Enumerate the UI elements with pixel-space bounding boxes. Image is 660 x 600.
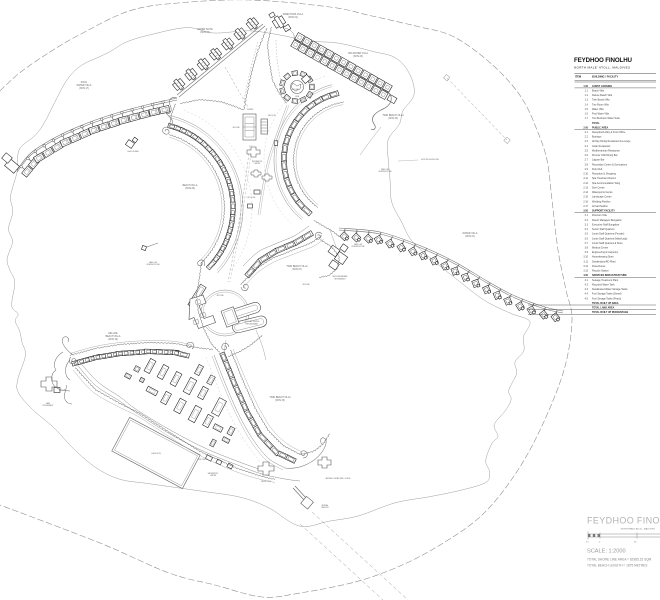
svg-text:Desalinated Water Storage Tank: Desalinated Water Storage Tanks — [592, 288, 628, 291]
svg-text:Fuel Storage Tanks (Petrol): Fuel Storage Tanks (Petrol) — [592, 297, 621, 300]
svg-text:Arrival Pavilion: Arrival Pavilion — [592, 205, 608, 208]
svg-text:NORTH MALE' ATOLL, MALDIVES: NORTH MALE' ATOLL, MALDIVES — [621, 528, 656, 531]
svg-text:Wedding Pavilion: Wedding Pavilion — [592, 200, 611, 203]
svg-text:CENTRE: CENTRE — [254, 163, 261, 165]
svg-text:BEACH VILLA: BEACH VILLA — [183, 184, 198, 187]
svg-text:SERVICES INFRASTRUCTURE: SERVICES INFRASTRUCTURE — [592, 274, 627, 277]
svg-text:All Day Dining Restaurant & Lo: All Day Dining Restaurant & Lounge — [592, 140, 631, 143]
svg-text:Watersports Centre: Watersports Centre — [592, 191, 613, 194]
svg-text:3.11: 3.11 — [584, 260, 589, 263]
svg-text:TOTAL: TOTAL — [592, 122, 600, 125]
svg-text:TOTAL BUILT UP PERCENTAGE: TOTAL BUILT UP PERCENTAGE — [592, 311, 629, 314]
svg-text:Junior Staff Quarters (Male/La: Junior Staff Quarters (Male/Lady) — [592, 237, 628, 240]
svg-text:Landscape Centre: Landscape Centre — [592, 196, 612, 199]
svg-text:Lagoon Bar: Lagoon Bar — [592, 159, 605, 162]
svg-text:(NOS 26): (NOS 26) — [353, 56, 363, 58]
svg-text:SCALE: 1:2000: SCALE: 1:2000 — [587, 549, 626, 555]
svg-text:4M ZONE: 4M ZONE — [291, 89, 298, 91]
svg-text:Boutique: Boutique — [592, 136, 602, 139]
svg-text:Directors Villa: Directors Villa — [592, 214, 607, 217]
svg-text:BUILDING / FACILITY: BUILDING / FACILITY — [592, 75, 618, 79]
svg-text:TOTAL SHORE LINE AREA = 82985.: TOTAL SHORE LINE AREA = 82985.15 SQM — [587, 558, 652, 562]
svg-text:Pool Water Villa: Pool Water Villa — [592, 113, 610, 116]
svg-text:DIVE CENTRE: DIVE CENTRE — [198, 459, 208, 461]
svg-text:GUEST LODGING: GUEST LODGING — [592, 85, 612, 88]
svg-text:TWIN BEACH VILLA: TWIN BEACH VILLA — [269, 396, 291, 399]
svg-text:(NOS 17): (NOS 17) — [79, 88, 89, 90]
svg-text:(NOS 07): (NOS 07) — [292, 269, 302, 271]
svg-text:Executive Staff Bungalow: Executive Staff Bungalow — [592, 223, 619, 226]
svg-text:2.16: 2.16 — [583, 200, 588, 203]
svg-text:2.15: 2.15 — [583, 196, 588, 199]
svg-text:Two Bedroom Water Suite: Two Bedroom Water Suite — [592, 117, 620, 120]
svg-text:PUBLIC AREA: PUBLIC AREA — [592, 126, 609, 129]
svg-text:TWIN BEACH VILLA: TWIN BEACH VILLA — [382, 114, 404, 117]
svg-text:Spa Accommodation Wing: Spa Accommodation Wing — [592, 182, 621, 185]
svg-text:TOTAL LAND AREA: TOTAL LAND AREA — [592, 307, 615, 310]
svg-text:Kids Club: Kids Club — [592, 168, 603, 171]
svg-text:NORTH MALE' ATOLL, MALDIVES: NORTH MALE' ATOLL, MALDIVES — [574, 66, 630, 70]
svg-text:Recycle Station: Recycle Station — [592, 270, 609, 273]
svg-text:Premier Chill Dining Bar: Premier Chill Dining Bar — [592, 154, 618, 157]
svg-text:3.00: 3.00 — [583, 210, 588, 213]
svg-text:Two Room Villa: Two Room Villa — [592, 103, 609, 106]
svg-text:3.12: 3.12 — [583, 265, 588, 268]
svg-text:Recycled Water Tank: Recycled Water Tank — [592, 284, 615, 287]
svg-text:DIRECTORS VILLA: DIRECTORS VILLA — [283, 13, 304, 16]
svg-text:Reception/Lobby & Front Office: Reception/Lobby & Front Office — [592, 131, 626, 134]
svg-text:Sewage Treatment Plant: Sewage Treatment Plant — [592, 279, 619, 282]
svg-text:RESTAURANT: RESTAURANT — [334, 277, 345, 280]
svg-text:WATER VILLA: WATER VILLA — [77, 84, 92, 87]
svg-text:WATER SUITE: WATER SUITE — [197, 28, 213, 31]
svg-text:3.10: 3.10 — [583, 256, 588, 259]
svg-text:SPA: SPA — [295, 95, 300, 98]
svg-text:2.12: 2.12 — [583, 182, 588, 185]
svg-text:CENTRE: CENTRE — [210, 475, 216, 477]
svg-text:Mediterranean Restaurant: Mediterranean Restaurant — [592, 150, 620, 153]
svg-text:2.13: 2.13 — [583, 186, 588, 189]
svg-text:(NOS 15): (NOS 15) — [275, 400, 285, 402]
svg-text:2.14: 2.14 — [583, 191, 588, 194]
svg-text:Dive Centre: Dive Centre — [592, 186, 605, 189]
svg-text:Junior Staff Quarters & Store: Junior Staff Quarters & Store — [592, 242, 623, 245]
svg-text:Water Villa: Water Villa — [592, 108, 604, 111]
svg-text:POOL: POOL — [81, 82, 88, 84]
svg-text:4M ZONE: 4M ZONE — [232, 127, 239, 129]
svg-text:Beach Villa: Beach Villa — [592, 89, 605, 92]
svg-text:Spa Treatment Rooms: Spa Treatment Rooms — [592, 177, 617, 180]
svg-text:EXISTING SHORE LINE: EXISTING SHORE LINE — [421, 159, 439, 161]
svg-text:(NOS 19): (NOS 19) — [108, 339, 118, 341]
svg-text:LAGOON: LAGOON — [151, 452, 161, 455]
svg-text:(NOS 15): (NOS 15) — [388, 118, 398, 120]
svg-text:KIDS CLUB: KIDS CLUB — [247, 197, 255, 199]
svg-text:RECEPTION: RECEPTION — [261, 481, 272, 483]
svg-text:(NOS 26): (NOS 26) — [185, 188, 195, 190]
svg-text:4M ZONE: 4M ZONE — [302, 284, 309, 286]
svg-text:SPA WATER VILLA: SPA WATER VILLA — [348, 52, 368, 55]
svg-text:Fuel Storage Tanks (Diesel): Fuel Storage Tanks (Diesel) — [592, 293, 622, 296]
svg-text:(NOS 21): (NOS 21) — [465, 236, 475, 238]
svg-text:LAGOON BAR: LAGOON BAR — [127, 150, 139, 153]
svg-text:TENNIS: TENNIS — [247, 109, 254, 111]
svg-text:FEYDHOO FINOLHU: FEYDHOO FINOLHU — [587, 516, 660, 527]
svg-text:Desalination/RO Plant: Desalination/RO Plant — [592, 260, 616, 263]
svg-text:2.10: 2.10 — [583, 173, 588, 176]
svg-text:TOTAL BEACH LENGTH = 1875 METR: TOTAL BEACH LENGTH = 1875 METRES — [587, 564, 647, 568]
svg-text:SUPPORT FACILITY: SUPPORT FACILITY — [592, 210, 615, 213]
svg-text:Junior Staff Quarters (Female): Junior Staff Quarters (Female) — [592, 233, 624, 236]
svg-text:ITEM: ITEM — [575, 75, 581, 79]
svg-text:WATER VILLA: WATER VILLA — [463, 232, 478, 235]
svg-text:4M ZONE: 4M ZONE — [216, 295, 223, 297]
svg-text:FEYDHOO FINOLHU: FEYDHOO FINOLHU — [574, 57, 633, 64]
svg-text:Senior Staff Quarters: Senior Staff Quarters — [592, 228, 615, 231]
svg-text:Resort Managers Bungalow: Resort Managers Bungalow — [592, 219, 622, 222]
svg-text:1.00: 1.00 — [583, 85, 588, 88]
svg-text:DELUXE: DELUXE — [108, 333, 118, 335]
svg-text:Recreation Centre & Gymnasium: Recreation Centre & Gymnasium — [592, 163, 627, 166]
svg-text:2.17: 2.17 — [583, 205, 588, 208]
svg-text:Medical Centre: Medical Centre — [592, 247, 609, 250]
svg-text:(NOS 07): (NOS 07) — [200, 32, 210, 34]
svg-text:Asian Restaurant: Asian Restaurant — [592, 145, 611, 148]
svg-text:Reception & Shopping: Reception & Shopping — [592, 173, 616, 176]
svg-text:3.13: 3.13 — [583, 270, 588, 273]
svg-text:TWIN BEACH VILLA: TWIN BEACH VILLA — [286, 265, 308, 268]
svg-text:(NOS 01): (NOS 01) — [288, 17, 298, 19]
svg-text:Engineering & Carpentry: Engineering & Carpentry — [592, 251, 619, 254]
svg-text:TOTAL BUILT UP AREA: TOTAL BUILT UP AREA — [592, 302, 619, 305]
svg-text:Housekeeping Store: Housekeeping Store — [592, 256, 614, 259]
svg-text:2.11: 2.11 — [584, 177, 589, 180]
svg-text:BEACH VILLA: BEACH VILLA — [106, 335, 121, 338]
svg-text:4.00: 4.00 — [583, 274, 588, 277]
svg-text:2.00: 2.00 — [583, 126, 588, 129]
svg-text:Powerhouse: Powerhouse — [592, 265, 606, 268]
svg-text:RESTAURANT: RESTAURANT — [246, 323, 260, 326]
svg-text:Twin Beach Villa: Twin Beach Villa — [592, 99, 610, 102]
svg-text:Deluxe Beach Villa: Deluxe Beach Villa — [592, 94, 613, 97]
